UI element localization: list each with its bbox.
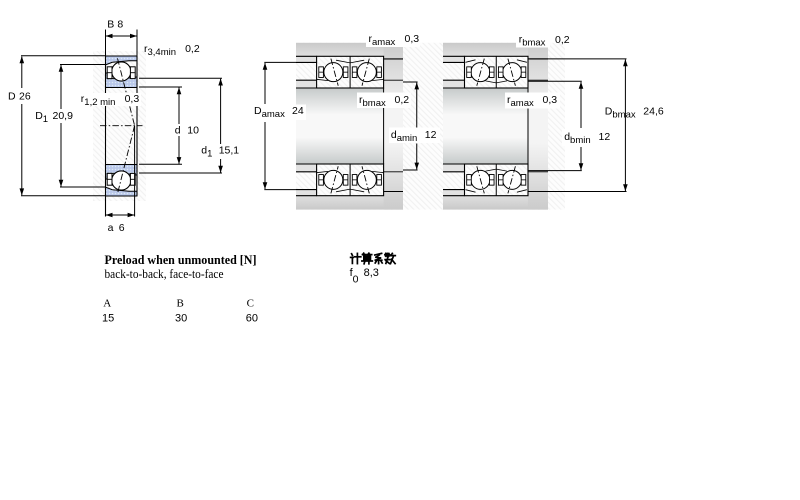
- svg-text:6: 6: [119, 222, 125, 234]
- svg-text:C: C: [247, 298, 254, 310]
- svg-text:back-to-back, face-to-face: back-to-back, face-to-face: [105, 267, 224, 281]
- svg-text:12: 12: [599, 131, 611, 143]
- svg-text:60: 60: [246, 312, 258, 324]
- svg-text:0,2: 0,2: [555, 34, 570, 46]
- svg-text:30: 30: [175, 312, 187, 324]
- svg-text:A: A: [103, 298, 111, 310]
- svg-text:15,1: 15,1: [219, 145, 240, 157]
- svg-text:Preload when unmounted [N]: Preload when unmounted [N]: [105, 253, 257, 267]
- svg-text:0,2: 0,2: [185, 43, 200, 55]
- svg-text:26: 26: [19, 90, 31, 102]
- svg-text:8: 8: [117, 19, 123, 31]
- svg-text:24,6: 24,6: [643, 106, 664, 118]
- svg-text:0,2: 0,2: [395, 94, 410, 106]
- svg-text:0,3: 0,3: [405, 33, 420, 45]
- svg-text:15: 15: [102, 312, 114, 324]
- svg-text:a: a: [108, 222, 114, 234]
- svg-text:8,3: 8,3: [364, 267, 379, 279]
- svg-text:12: 12: [425, 129, 437, 141]
- svg-text:10: 10: [187, 125, 199, 137]
- svg-text:0,3: 0,3: [125, 93, 140, 105]
- svg-text:20,9: 20,9: [53, 110, 74, 122]
- svg-text:0,3: 0,3: [543, 94, 558, 106]
- svg-text:D: D: [8, 90, 16, 102]
- svg-text:B: B: [177, 298, 184, 310]
- svg-text:24: 24: [292, 105, 304, 117]
- svg-text:d: d: [175, 125, 181, 137]
- svg-text:B: B: [107, 19, 114, 31]
